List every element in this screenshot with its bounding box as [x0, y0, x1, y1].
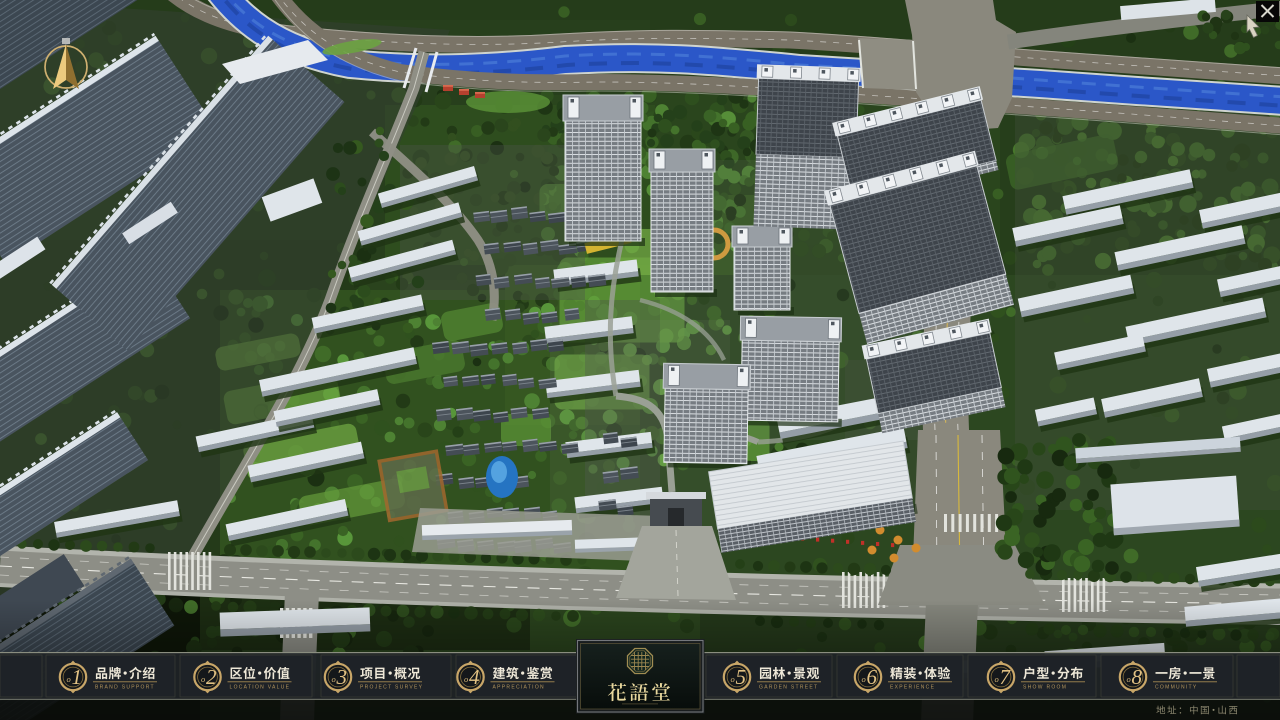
svg-text:GARDEN STREET: GARDEN STREET [759, 685, 818, 691]
svg-text:LOCATION VALUE: LOCATION VALUE [230, 685, 291, 691]
svg-text:7: 7 [1000, 665, 1012, 689]
svg-text:5: 5 [736, 665, 747, 689]
svg-text:o: o [1127, 674, 1131, 684]
svg-text:SHOW ROOM: SHOW ROOM [1023, 685, 1067, 691]
svg-text:COMMUNITY: COMMUNITY [1155, 685, 1198, 691]
svg-text:EXPERIENCE: EXPERIENCE [890, 685, 935, 691]
svg-text:BRAND SUPPORT: BRAND SUPPORT [95, 685, 155, 691]
svg-text:o: o [464, 674, 468, 684]
svg-text:o: o [67, 674, 71, 684]
svg-text:o: o [731, 674, 735, 684]
svg-text:6: 6 [867, 665, 878, 689]
svg-text:o: o [201, 674, 205, 684]
svg-text:o: o [332, 674, 336, 684]
svg-text:2: 2 [206, 665, 217, 689]
svg-text:1: 1 [72, 665, 83, 689]
svg-text:APPRECIATION: APPRECIATION [493, 685, 545, 691]
svg-text:8: 8 [1132, 665, 1143, 689]
svg-text:PROJECT SURVEY: PROJECT SURVEY [360, 685, 423, 691]
svg-text:o: o [995, 674, 999, 684]
svg-text:o: o [862, 674, 866, 684]
svg-text:3: 3 [336, 665, 348, 689]
svg-text:4: 4 [469, 665, 480, 689]
